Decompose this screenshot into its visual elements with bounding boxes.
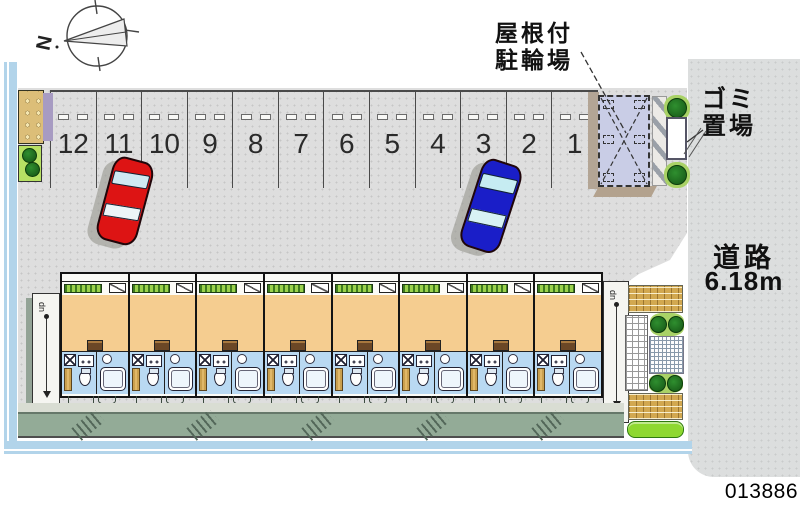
wheel-stop [58,114,69,120]
toilet-icon [147,371,159,386]
wheel-stop [468,114,479,120]
tree-crown [667,98,687,118]
brick-paving [628,285,683,313]
walkway-hatch [186,409,219,441]
balcony-edge [468,274,534,282]
walkway-hatch [71,409,104,441]
interior-wall [502,352,503,394]
balcony-edge [265,274,331,282]
bathtub-icon [235,367,261,391]
left-boundary-strip [4,62,17,454]
wheel-stop [351,114,362,120]
bike-stall-mark [634,173,645,182]
cabinet-icon [560,340,576,351]
bathtub-icon [371,367,397,391]
garbage-area-box [666,117,687,160]
sink-icon [440,354,450,364]
interior-wall [434,352,435,394]
tree-crown [649,375,666,392]
bike-stall-mark [603,100,614,109]
bathtub-icon [506,367,532,391]
tree-crown [667,165,687,185]
balcony-partition [176,283,193,293]
brick-paving [628,393,683,420]
washer-space [132,368,140,391]
balcony-planter [537,284,575,293]
washer-space [267,368,275,391]
garbage-area-label: ゴミ 置場 [702,86,756,140]
balcony-edge [535,274,601,282]
bathtub-icon [573,367,599,391]
parking-stall: 7 [279,92,325,188]
wheel-stop [377,114,388,120]
washer-space [335,368,343,391]
cabinet-icon [290,340,306,351]
toilet-icon [79,371,91,386]
interior-wall [231,352,232,394]
closet-icon [335,354,347,366]
tree-crown [667,375,684,392]
tree-pair-icon [649,374,683,393]
balcony [265,282,331,295]
washer-space [199,368,207,391]
building-units [60,272,603,398]
apartment-unit [535,274,601,396]
wheel-stop [241,114,252,120]
bike-stall-mark [634,135,645,144]
stair-direction-label: dn [608,290,618,300]
apartment-unit [265,274,333,396]
main-room [400,295,466,352]
sink-icon [170,354,180,364]
balcony [468,282,534,295]
balcony [400,282,466,295]
parking-stall-number: 4 [416,128,461,160]
closet-icon [132,354,144,366]
bathroom-kitchen-area [468,352,534,394]
bike-stall-mark [634,100,645,109]
road-width-label: 6.18m [690,266,798,297]
wheel-stop [396,114,407,120]
bike-stall-mark [603,173,614,182]
parking-stall-number: 9 [188,128,233,160]
bathtub-icon [168,367,194,391]
bottom-boundary-strip [4,441,692,454]
lattice-fence [625,315,648,391]
cabinet-icon [87,340,103,351]
stairwell-left: dn [32,293,60,413]
bike-parking-label-line1: 屋根付 [495,20,573,47]
balcony-partition [311,283,328,293]
parking-stall-number: 2 [507,128,552,160]
plan-id: 013886 [700,480,798,504]
wheel-stop [149,114,160,120]
balcony-partition [244,283,261,293]
bathtub-icon [303,367,329,391]
balcony-planter [64,284,102,293]
parking-stall-number: 5 [370,128,415,160]
balcony-planter [470,284,508,293]
closet-icon [470,354,482,366]
balcony-partition [109,283,126,293]
balcony-planter [199,284,237,293]
wheel-stop [168,114,179,120]
interior-wall [299,352,300,394]
bathroom-kitchen-area [197,352,263,394]
washer-space [537,368,545,391]
closet-icon [199,354,211,366]
balcony-edge [400,274,466,282]
apartment-unit [333,274,401,396]
parking-stall: 12 [50,92,97,188]
kitchen-counter-icon [416,355,432,367]
apartment-unit [197,274,265,396]
bathroom-kitchen-area [62,352,128,394]
parking-stall: 9 [188,92,234,188]
bathroom-kitchen-area [130,352,196,394]
wheel-stop [77,114,88,120]
wheel-stop [214,114,225,120]
cabinet-icon [425,340,441,351]
tree-pair-icon [650,313,684,336]
parking-stall-number: 7 [279,128,324,160]
bike-parking-label: 屋根付 駐輪場 [495,20,573,74]
sink-icon [305,354,315,364]
balcony [62,282,128,295]
toilet-icon [417,371,429,386]
cabinet-icon [493,340,509,351]
closet-icon [402,354,414,366]
sink-icon [373,354,383,364]
apartment-unit [62,274,130,396]
main-room [468,295,534,352]
kitchen-counter-icon [78,355,94,367]
garbage-label-line1: ゴミ [702,86,756,113]
toilet-icon [350,371,362,386]
wheel-stop [104,114,115,120]
interior-wall [569,352,570,394]
parking-stall: 5 [370,92,416,188]
parking-stall-number: 12 [51,128,96,160]
garbage-label-line2: 置場 [702,113,756,140]
bathtub-icon [100,367,126,391]
parking-stall-number: 8 [233,128,278,160]
wheel-stop [195,114,206,120]
kitchen-counter-icon [281,355,297,367]
balcony [197,282,263,295]
interior-wall [367,352,368,394]
balcony-planter [335,284,373,293]
wheel-stop [286,114,297,120]
balcony-partition [379,283,396,293]
balcony-edge [130,274,196,282]
wheel-stop [487,114,498,120]
tile-paving [649,336,684,374]
toilet-icon [552,371,564,386]
toilet-icon [214,371,226,386]
stair-arrow [616,304,617,406]
stair-direction-label: dn [37,302,47,312]
tree-crown [650,316,667,333]
kitchen-counter-icon [349,355,365,367]
compass-icon: N [28,0,148,82]
bathroom-kitchen-area [400,352,466,394]
balcony [535,282,601,295]
tree-icon [664,162,690,188]
parking-stall-number: 6 [324,128,369,160]
wheel-stop [423,114,434,120]
stair-arrow [46,316,47,396]
closet-icon [64,354,76,366]
wheel-stop [123,114,134,120]
apartment-unit [130,274,198,396]
washer-space [470,368,478,391]
wheel-stop [442,114,453,120]
walkway [18,412,624,438]
interior-wall [164,352,165,394]
balcony-partition [514,283,531,293]
bathroom-kitchen-area [535,352,601,394]
parking-stall-number: 10 [142,128,187,160]
wheel-stop [260,114,271,120]
wheel-stop [305,114,316,120]
cabinet-icon [357,340,373,351]
hedge-icon [627,421,684,438]
site-plan: N 121110987654321 [0,0,800,509]
bike-parking-label-line2: 駐輪場 [495,47,573,74]
parking-stall: 8 [233,92,279,188]
washer-space [64,368,72,391]
closet-icon [267,354,279,366]
interior-wall [96,352,97,394]
balcony-partition [447,283,464,293]
bike-parking-shadow [593,186,657,197]
kitchen-counter-icon [146,355,162,367]
kitchen-counter-icon [551,355,567,367]
balcony [130,282,196,295]
kitchen-counter-icon [484,355,500,367]
washer-space [402,368,410,391]
bathroom-kitchen-area [333,352,399,394]
balcony-edge [197,274,263,282]
parking-stall: 6 [324,92,370,188]
main-room [62,295,128,352]
main-room [265,295,331,352]
sink-icon [575,354,585,364]
toilet-icon [282,371,294,386]
parking-stall: 4 [416,92,462,188]
tree-crown [668,316,685,333]
shrub-icon [25,162,40,177]
compass-north-label: N [33,34,58,53]
balcony-partition [582,283,599,293]
sink-icon [102,354,112,364]
balcony [333,282,399,295]
bike-stall-mark [603,135,614,144]
balcony-planter [132,284,170,293]
main-room [197,295,263,352]
bathroom-kitchen-area [265,352,331,394]
wheel-stop [514,114,525,120]
closet-icon [537,354,549,366]
main-room [333,295,399,352]
balcony-planter [402,284,440,293]
walkway-hatch [301,409,334,441]
balcony-planter [267,284,305,293]
sink-icon [237,354,247,364]
wall-shadow-strip [43,93,53,141]
cabinet-icon [222,340,238,351]
shrub-icon [22,148,37,163]
main-room [535,295,601,352]
wheel-stop [332,114,343,120]
kitchen-counter-icon [213,355,229,367]
main-room [130,295,196,352]
balcony-edge [333,274,399,282]
stone-planter-box [18,90,44,144]
toilet-icon [485,371,497,386]
cabinet-icon [154,340,170,351]
bathtub-icon [438,367,464,391]
balcony-edge [62,274,128,282]
wheel-stop [560,114,571,120]
covered-bicycle-parking [598,95,650,187]
walkway-hatch [416,409,449,441]
wheel-stop [533,114,544,120]
walkway-hatch [531,409,564,441]
parking-stall-number: 3 [461,128,506,160]
apartment-unit [400,274,468,396]
apartment-unit [468,274,536,396]
shrub-planter [18,145,42,182]
sink-icon [508,354,518,364]
